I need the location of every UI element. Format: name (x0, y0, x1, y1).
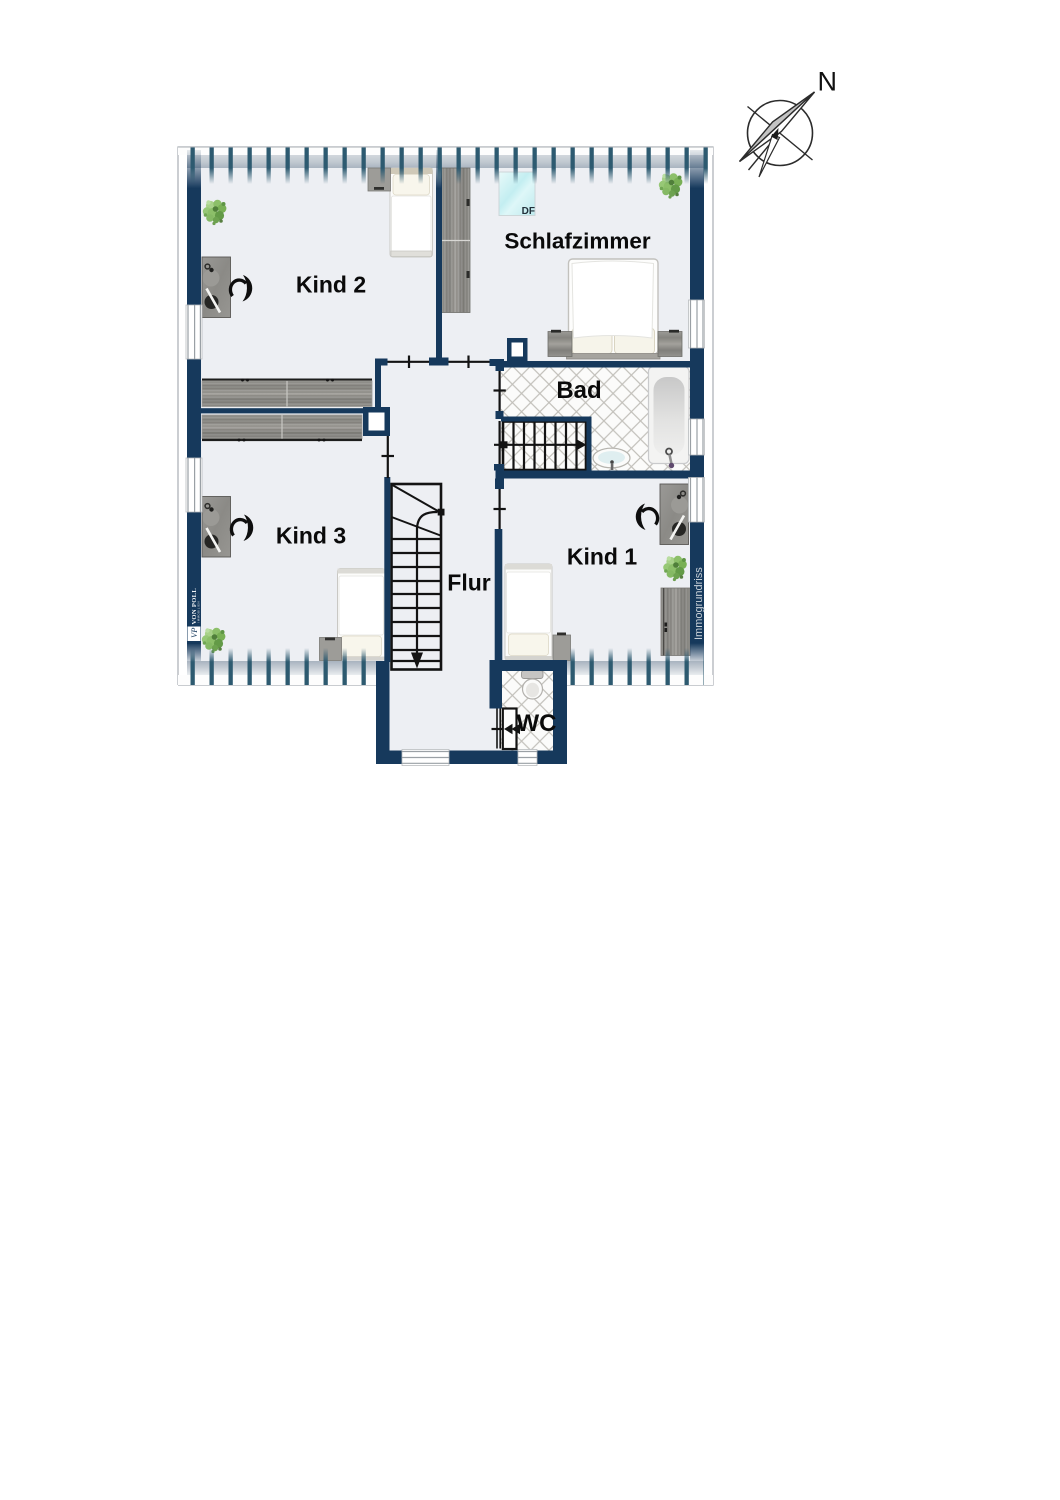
svg-text:Kind 3: Kind 3 (276, 523, 346, 549)
svg-text:Flur: Flur (447, 570, 490, 596)
svg-text:Bad: Bad (556, 377, 601, 404)
svg-text:Immogrundriss: Immogrundriss (693, 567, 705, 640)
svg-text:Kind 2: Kind 2 (296, 272, 366, 298)
svg-text:WC: WC (517, 710, 557, 737)
svg-text:Schlafzimmer: Schlafzimmer (504, 229, 651, 254)
svg-text:Kind 1: Kind 1 (567, 544, 637, 570)
svg-text:DF: DF (522, 206, 535, 217)
svg-text:IMMOBILIEN: IMMOBILIEN (197, 601, 201, 622)
svg-text:N: N (818, 67, 838, 97)
svg-text:VP: VP (189, 628, 199, 638)
